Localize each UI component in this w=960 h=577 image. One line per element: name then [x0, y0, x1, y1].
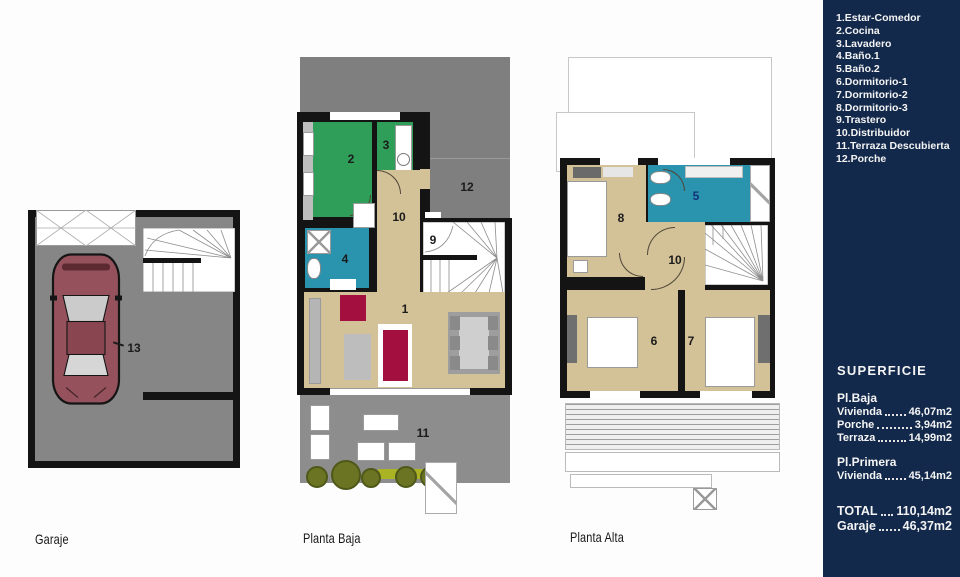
floorplan-sheet: 13 Garaje 12 2 3 10 — [0, 0, 960, 577]
legend-item: 8.Dormitorio-3 — [836, 102, 950, 115]
superficie-rows-primera: Vivienda 45,14m2 — [837, 469, 952, 482]
toilet-pb — [307, 258, 321, 279]
garage-wall-stub — [143, 392, 240, 400]
garage-door — [36, 210, 136, 246]
superficie-rows-baja: Vivienda 46,07m2 Porche 3,94m2 Terraza 1… — [837, 405, 952, 444]
garage-staircase — [143, 228, 235, 292]
bed — [587, 317, 638, 368]
legend-item: 10.Distribuidor — [836, 127, 950, 140]
room-label-cocina: 2 — [342, 153, 360, 165]
chair — [450, 336, 460, 350]
legend-item: 12.Porche — [836, 153, 950, 166]
pa-south-window — [590, 391, 640, 398]
terrace-seat — [388, 442, 416, 461]
pa-south-window — [700, 391, 752, 398]
room-legend: 1.Estar-Comedor 2.Cocina 3.Lavadero 4.Ba… — [836, 12, 950, 166]
room-label-garage: 13 — [123, 342, 145, 354]
dot-leader — [885, 414, 906, 416]
wardrobe-light — [603, 167, 633, 177]
sideboard — [309, 298, 321, 384]
legend-item: 3.Lavadero — [836, 38, 950, 51]
room-label-bano2: 5 — [688, 190, 704, 202]
room-label-estar: 1 — [397, 303, 413, 315]
chair — [488, 316, 498, 330]
info-sidebar: 1.Estar-Comedor 2.Cocina 3.Lavadero 4.Ba… — [823, 0, 960, 577]
row-name: Terraza — [837, 432, 875, 444]
stairs-landing — [750, 165, 770, 222]
row-name: Porche — [837, 419, 874, 431]
room-label-trastero: 9 — [425, 234, 441, 246]
superficie-group-heading: Pl.Primera — [837, 455, 896, 469]
terrace-outline — [570, 474, 712, 488]
washing-machine — [397, 153, 410, 166]
legend-item: 2.Cocina — [836, 25, 950, 38]
legend-item: 11.Terraza Descubierta — [836, 140, 950, 153]
chair — [488, 336, 498, 350]
pa-staircase — [705, 225, 768, 285]
plant-bush — [306, 466, 328, 488]
caption-planta-alta: Planta Alta — [570, 529, 624, 545]
pergola-slats — [565, 403, 780, 450]
plant-bush — [331, 460, 361, 490]
legend-item: 6.Dormitorio-1 — [836, 76, 950, 89]
caption-garaje: Garaje — [35, 531, 69, 547]
row-name: TOTAL — [837, 504, 878, 518]
wardrobe — [573, 167, 601, 178]
superficie-row: Vivienda 46,07m2 — [837, 405, 952, 418]
path-square — [693, 488, 717, 510]
row-value: 3,94m2 — [915, 419, 952, 431]
dot-leader — [879, 529, 900, 531]
room-label-lavadero: 3 — [378, 139, 394, 151]
terrace-table — [363, 414, 399, 431]
porche-divider-line — [420, 158, 510, 159]
kitchen-stove — [303, 172, 314, 196]
bed — [567, 181, 607, 257]
dot-leader — [881, 514, 894, 516]
kitchen-sink — [303, 132, 314, 156]
pb-north-window — [330, 112, 400, 120]
plant-bush — [361, 468, 381, 488]
room-label-distribuidor-pb: 10 — [387, 211, 411, 223]
planta-alta-plan: 8 5 10 6 — [555, 57, 785, 520]
sofa-cushion — [383, 330, 408, 381]
legend-item: 7.Dormitorio-2 — [836, 89, 950, 102]
pa-north-window — [658, 158, 730, 165]
garden-path — [425, 462, 457, 514]
stairs-window — [425, 212, 441, 218]
caption-planta-baja: Planta Baja — [303, 530, 361, 546]
bath-door-opening — [330, 279, 356, 290]
garage-plan: 13 — [28, 210, 240, 468]
superficie-group-heading: Pl.Baja — [837, 391, 877, 405]
room-label-dormitorio1: 6 — [646, 335, 662, 347]
room-label-bano1: 4 — [337, 253, 353, 265]
terrace-seat — [357, 442, 385, 461]
dot-leader — [885, 478, 906, 480]
bedside-table — [573, 260, 588, 273]
bath-counter — [685, 166, 743, 178]
superficie-totals: TOTAL 110,14m2 Garaje 46,37m2 — [837, 503, 952, 533]
wardrobe — [758, 315, 770, 363]
legend-item: 9.Trastero — [836, 114, 950, 127]
grey-rug — [344, 334, 371, 380]
chair — [488, 356, 498, 370]
kitchen-lower-cabinet — [353, 203, 375, 228]
legend-item: 4.Baño.1 — [836, 50, 950, 63]
row-name: Garaje — [837, 519, 876, 533]
car-top-view — [50, 250, 122, 408]
room-label-dormitorio2: 7 — [683, 335, 699, 347]
superficie-row: Vivienda 45,14m2 — [837, 469, 952, 482]
terrace-frame — [310, 434, 330, 460]
superficie-row: Porche 3,94m2 — [837, 418, 952, 431]
pa-north-window — [600, 158, 638, 165]
superficie-title: SUPERFICIE — [837, 363, 927, 378]
room-label-distribuidor-pa: 10 — [663, 254, 687, 266]
room-label-porche: 12 — [457, 181, 477, 193]
wardrobe — [567, 315, 577, 363]
bed — [705, 317, 755, 387]
crimson-rug — [340, 295, 366, 321]
row-value: 14,99m2 — [909, 432, 952, 444]
row-value: 46,37m2 — [903, 519, 952, 533]
total-row: Garaje 46,37m2 — [837, 518, 952, 533]
dot-leader — [878, 440, 905, 442]
legend-item: 5.Baño.2 — [836, 63, 950, 76]
legend-item: 1.Estar-Comedor — [836, 12, 950, 25]
plant-bush — [395, 466, 417, 488]
total-row: TOTAL 110,14m2 — [837, 503, 952, 518]
dining-table — [459, 317, 489, 369]
dot-leader — [877, 427, 911, 429]
porche-door-opening — [420, 169, 430, 189]
row-value: 110,14m2 — [896, 504, 952, 518]
chair — [450, 356, 460, 370]
room-label-terraza: 11 — [411, 427, 435, 439]
room-label-dormitorio3: 8 — [613, 212, 629, 224]
planta-baja-plan: 12 2 3 10 4 — [297, 57, 512, 520]
row-value: 45,14m2 — [909, 470, 952, 482]
row-value: 46,07m2 — [909, 406, 952, 418]
chair — [450, 316, 460, 330]
bidet-pa — [650, 193, 671, 206]
shower — [307, 230, 331, 254]
terrace-frame — [310, 405, 330, 431]
row-name: Vivienda — [837, 470, 882, 482]
terrace-outline — [565, 452, 780, 472]
row-name: Vivienda — [837, 406, 882, 418]
superficie-row: Terraza 14,99m2 — [837, 431, 952, 444]
